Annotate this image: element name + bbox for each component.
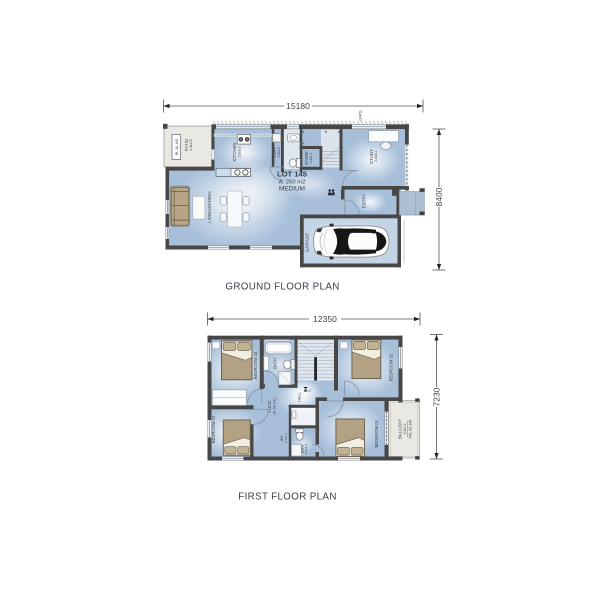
svg-text:RL 30.145: RL 30.145 bbox=[175, 139, 179, 155]
svg-text:BEDROOM 02: BEDROOM 02 bbox=[389, 353, 394, 381]
svg-text:BEDROOM 01: BEDROOM 01 bbox=[374, 419, 379, 447]
svg-text:HALL: HALL bbox=[297, 391, 302, 402]
svg-text:FIRST FLOOR PLAN: FIRST FLOOR PLAN bbox=[238, 492, 337, 503]
svg-text:7230: 7230 bbox=[431, 387, 441, 406]
svg-text:(A: 56 m2): (A: 56 m2) bbox=[273, 398, 277, 414]
svg-text:GROUND FLOOR PLAN: GROUND FLOOR PLAN bbox=[225, 282, 339, 293]
svg-text:BALCONY: BALCONY bbox=[398, 419, 403, 439]
svg-text:GARAGE: GARAGE bbox=[305, 233, 310, 252]
svg-text:BEDROOM 03: BEDROOM 03 bbox=[253, 351, 258, 379]
svg-text:3.4x3.1: 3.4x3.1 bbox=[374, 151, 378, 162]
svg-text:2.4x2.9: 2.4x2.9 bbox=[189, 139, 193, 150]
svg-text:1.1x1.4: 1.1x1.4 bbox=[284, 433, 288, 443]
svg-text:15180: 15180 bbox=[286, 101, 310, 111]
svg-text:BEDROOM 04: BEDROOM 04 bbox=[211, 415, 216, 443]
svg-text:8400: 8400 bbox=[434, 187, 444, 206]
svg-text:BATH: BATH bbox=[273, 358, 278, 369]
svg-text:3.2x1.9: 3.2x1.9 bbox=[403, 423, 407, 434]
svg-text:2.9x3.2: 2.9x3.2 bbox=[238, 146, 242, 157]
svg-text:1.2x1.9: 1.2x1.9 bbox=[277, 147, 281, 158]
svg-text:12350: 12350 bbox=[313, 314, 337, 324]
svg-text:GATE: GATE bbox=[357, 110, 362, 121]
svg-text:STUDY: STUDY bbox=[369, 149, 374, 164]
svg-text:FFL 33.145: FFL 33.145 bbox=[408, 420, 412, 439]
svg-text:1.2x1.1: 1.2x1.1 bbox=[309, 152, 313, 163]
svg-text:LIVING/DINING: LIVING/DINING bbox=[207, 191, 212, 223]
svg-text:KITCHEN: KITCHEN bbox=[232, 143, 237, 162]
svg-text:2: 2 bbox=[333, 192, 335, 196]
svg-text:LOT 145: LOT 145 bbox=[277, 170, 308, 179]
svg-text:ENTRY: ENTRY bbox=[362, 194, 367, 209]
svg-text:LUCD: LUCD bbox=[267, 401, 272, 413]
svg-text:x2: x2 bbox=[308, 388, 311, 392]
svg-text:MEDIUM: MEDIUM bbox=[279, 185, 305, 192]
svg-text:2.1x1.4: 2.1x1.4 bbox=[304, 444, 308, 454]
